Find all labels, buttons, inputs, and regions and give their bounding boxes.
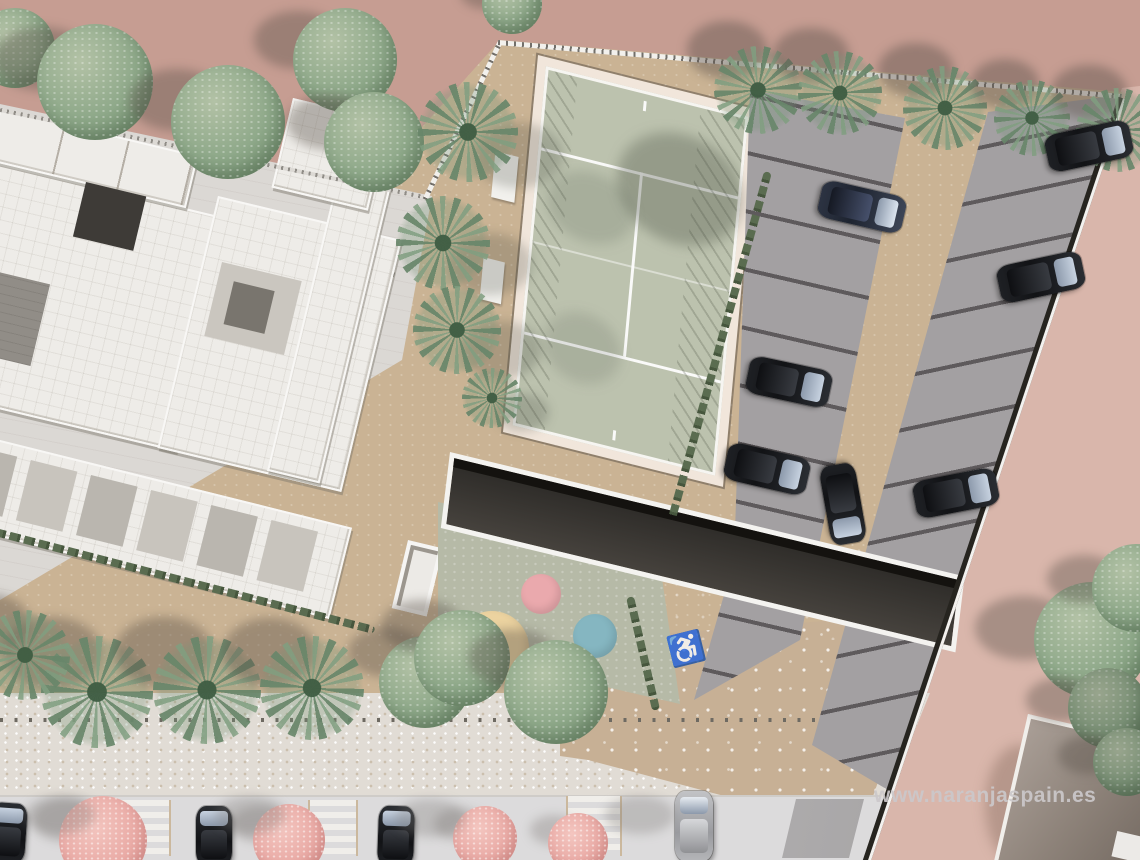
terrace-floor: [16, 460, 78, 532]
tree-shadow: [605, 796, 675, 834]
parked-car: [675, 791, 713, 860]
tree-shadow: [25, 796, 95, 834]
curb-line: [0, 795, 880, 797]
court-center-mark: [613, 430, 617, 441]
round-tree: [504, 640, 608, 744]
round-tree: [171, 65, 285, 179]
terrace-floor: [0, 445, 17, 517]
parked-car: [0, 802, 28, 860]
patio-inner: [224, 281, 275, 334]
court-center-mark: [643, 101, 647, 112]
terrace-floor: [256, 520, 318, 592]
round-tree: [37, 24, 153, 140]
playground-circle-pink: [521, 574, 561, 614]
watermark: www.naranjaspain.es: [874, 784, 1096, 808]
tree-shadow: [215, 796, 285, 834]
terrace-floor: [196, 505, 258, 577]
tree-shadow: [395, 799, 465, 837]
terrace-floor: [76, 475, 138, 547]
terrace-floor: [136, 490, 198, 562]
round-tree: [482, 0, 542, 34]
round-tree: [324, 92, 424, 192]
neighbor-building-annex: [1111, 831, 1140, 860]
site-plan-render: ♿ www.naranjaspain.es: [0, 0, 1140, 860]
